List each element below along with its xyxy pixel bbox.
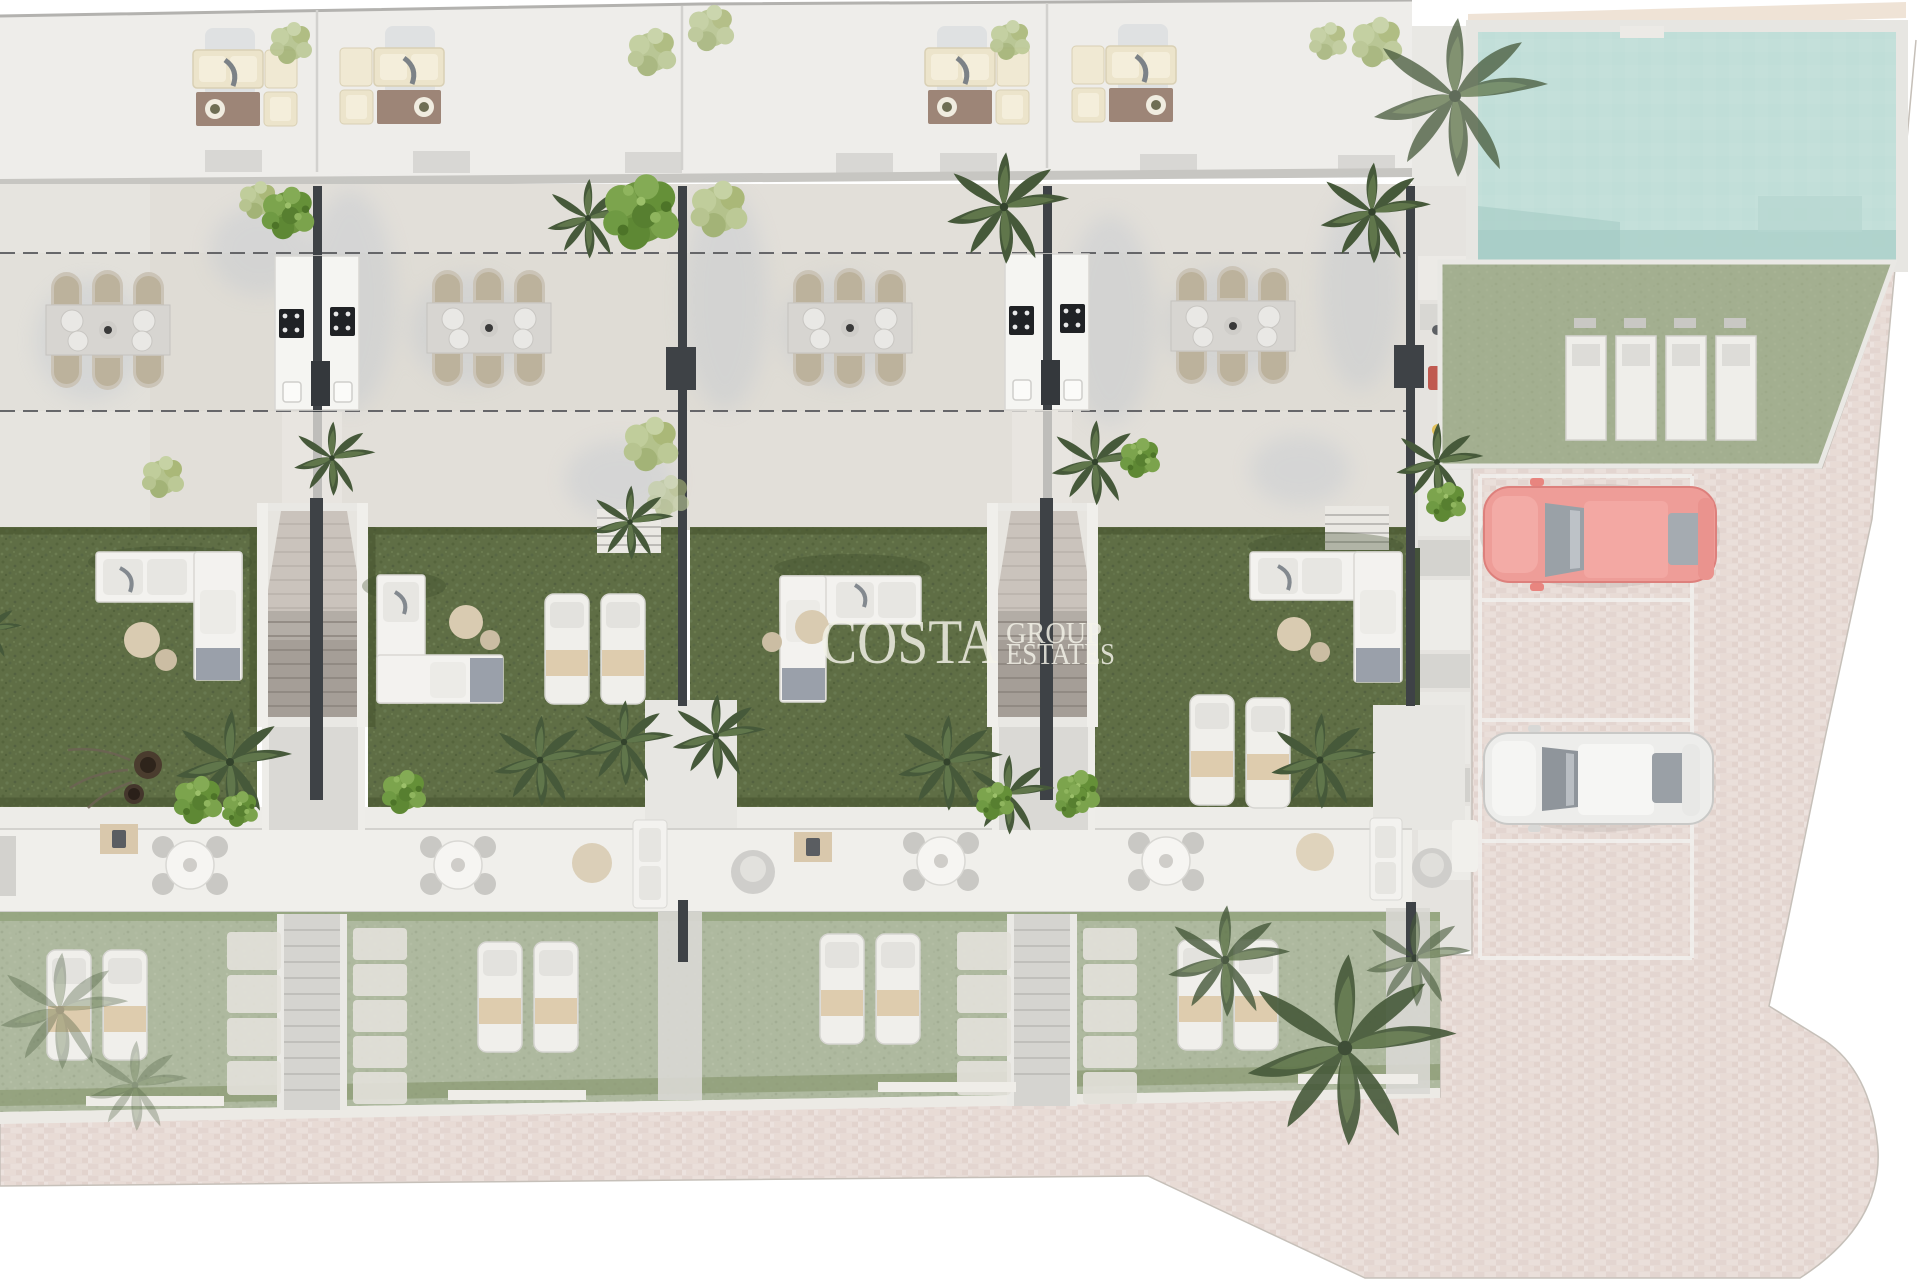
svg-text:ESTATES: ESTATES [1006, 636, 1115, 671]
svg-text:COSTA: COSTA [820, 606, 998, 677]
